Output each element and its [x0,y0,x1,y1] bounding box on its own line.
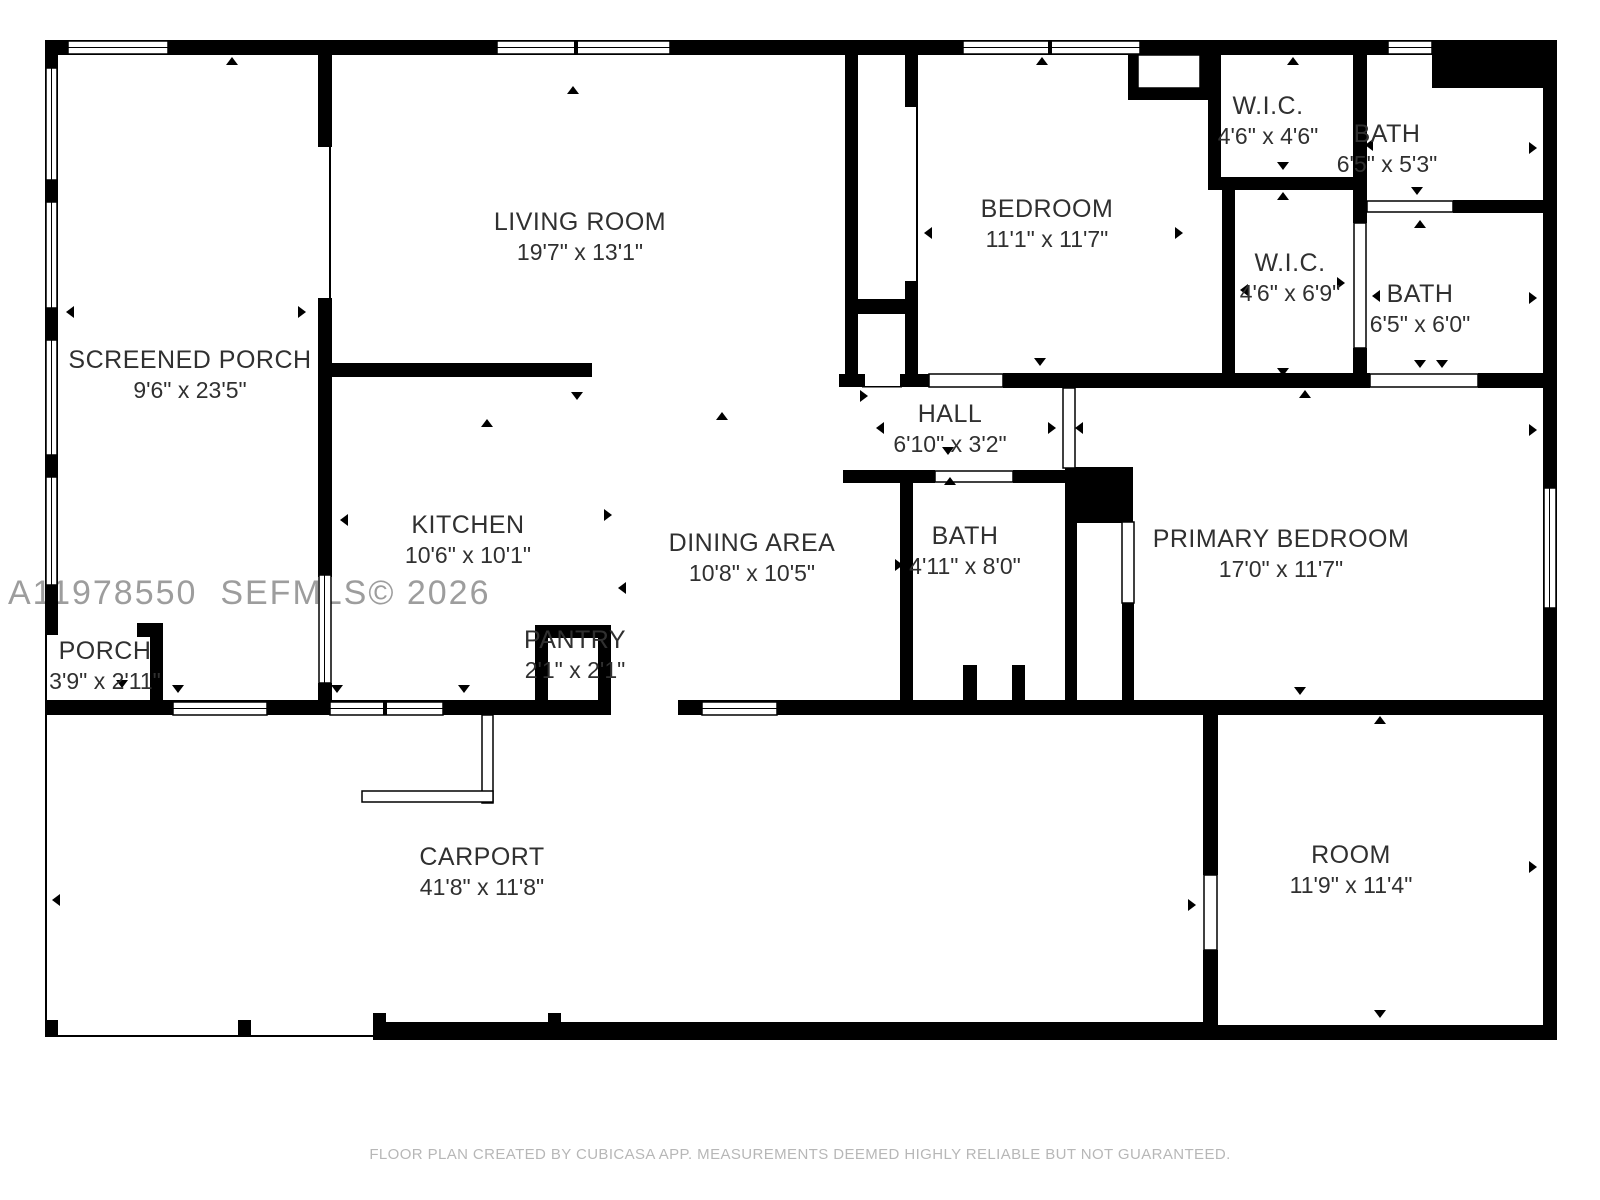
room-dimensions: 6'5" x 5'3" [1337,149,1438,179]
carport-railing [362,715,493,803]
room-label-hall: HALL 6'10" x 3'2" [893,399,1006,459]
room-dimensions: 3'9" x 2'11" [49,666,161,696]
room-name: ROOM [1290,840,1413,870]
room-label-porch: PORCH 3'9" x 2'11" [49,636,161,696]
room-label-bath-1: BATH 6'5" x 5'3" [1337,119,1438,179]
room-name: PORCH [49,636,161,666]
room-dimensions: 10'8" x 10'5" [669,558,836,588]
room-name: BATH [1337,119,1438,149]
floor-plan-page: A11978550 SEFMLS© 2026 [0,0,1600,1200]
room-label-pantry: PANTRY 2'1" x 2'1" [524,625,626,685]
room-dimensions: 11'9" x 11'4" [1290,870,1413,900]
disclaimer-footer: FLOOR PLAN CREATED BY CUBICASA APP. MEAS… [0,1146,1600,1163]
room-dimensions: 4'6" x 6'9" [1240,278,1341,308]
room-label-bath-2: BATH 6'5" x 6'0" [1370,279,1471,339]
room-label-screened-porch: SCREENED PORCH 9'6" x 23'5" [68,345,311,405]
room-dimensions: 10'6" x 10'1" [405,540,531,570]
room-dimensions: 6'5" x 6'0" [1370,309,1471,339]
room-name: SCREENED PORCH [68,345,311,375]
room-dimensions: 19'7" x 13'1" [494,237,666,267]
room-label-dining-area: DINING AREA 10'8" x 10'5" [669,528,836,588]
room-dimensions: 9'6" x 23'5" [68,375,311,405]
room-dimensions: 2'1" x 2'1" [524,655,626,685]
room-label-bath-3: BATH 4'11" x 8'0" [909,521,1021,581]
room-label-wic-2: W.I.C. 4'6" x 6'9" [1240,248,1341,308]
room-name: BATH [909,521,1021,551]
room-name: KITCHEN [405,510,531,540]
room-label-carport: CARPORT 41'8" x 11'8" [419,842,544,902]
room-dimensions: 17'0" x 11'7" [1153,554,1410,584]
room-dimensions: 6'10" x 3'2" [893,429,1006,459]
room-name: BATH [1370,279,1471,309]
room-label-kitchen: KITCHEN 10'6" x 10'1" [405,510,531,570]
room-dimensions: 4'6" x 4'6" [1218,121,1319,151]
room-name: W.I.C. [1240,248,1341,278]
room-name: DINING AREA [669,528,836,558]
floor-plan-drawing [0,0,1600,1200]
room-name: PRIMARY BEDROOM [1153,524,1410,554]
room-name: BEDROOM [981,194,1114,224]
room-label-primary-bedroom: PRIMARY BEDROOM 17'0" x 11'7" [1153,524,1410,584]
room-name: HALL [893,399,1006,429]
room-name: CARPORT [419,842,544,872]
room-name: LIVING ROOM [494,207,666,237]
room-label-bedroom: BEDROOM 11'1" x 11'7" [981,194,1114,254]
room-name: PANTRY [524,625,626,655]
room-label-living-room: LIVING ROOM 19'7" x 13'1" [494,207,666,267]
room-label-wic-1: W.I.C. 4'6" x 4'6" [1218,91,1319,151]
room-dimensions: 41'8" x 11'8" [419,872,544,902]
room-name: W.I.C. [1218,91,1319,121]
wall-openings [611,700,678,715]
room-dimensions: 11'1" x 11'7" [981,224,1114,254]
room-dimensions: 4'11" x 8'0" [909,551,1021,581]
room-label-room: ROOM 11'9" x 11'4" [1290,840,1413,900]
